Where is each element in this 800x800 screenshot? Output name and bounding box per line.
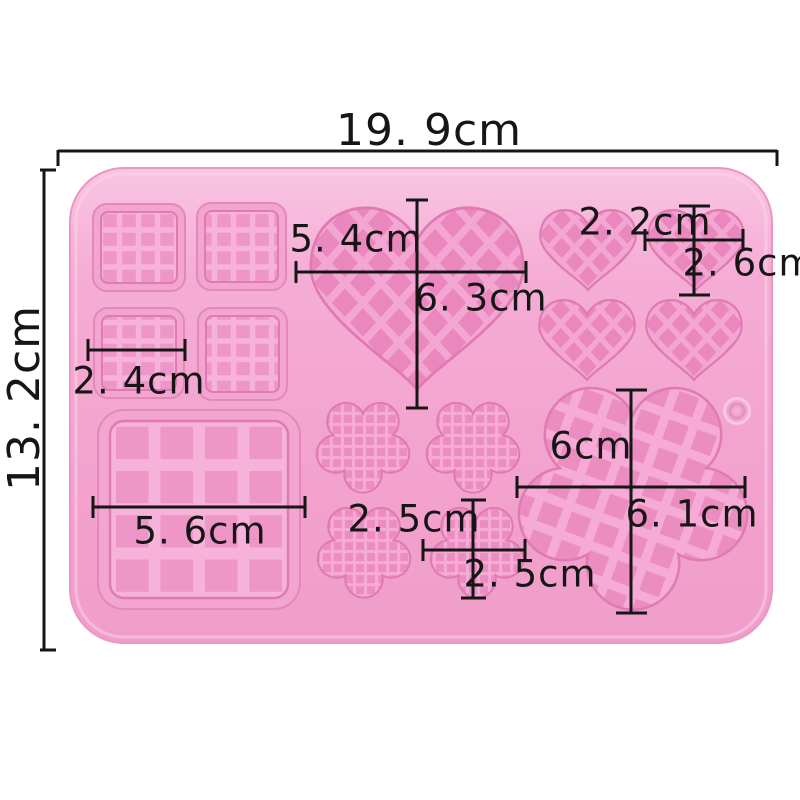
dim-label-overall-width: 19. 9cm bbox=[336, 109, 522, 153]
cavity-square-small-2 bbox=[197, 203, 286, 290]
dim-label-small-square-width: 2. 4cm bbox=[73, 363, 206, 400]
dim-label-large-heart-height: 6. 3cm bbox=[415, 280, 548, 317]
product-image: 19. 9cm 13. 2cm 5. 4cm 6. 3cm 2. 2cm 2. … bbox=[0, 0, 800, 800]
dim-label-small-heart-width: 2. 2cm bbox=[579, 204, 712, 241]
dim-label-large-flower-width: 6. 1cm bbox=[626, 496, 759, 533]
cavity-square-small-4 bbox=[198, 308, 287, 400]
cavity-square-small-1 bbox=[93, 204, 185, 291]
dim-label-small-flower-height: 2. 5cm bbox=[348, 501, 481, 538]
dim-label-large-square-width: 5. 6cm bbox=[134, 513, 267, 550]
dim-label-overall-height: 13. 2cm bbox=[3, 305, 47, 491]
dim-label-large-heart-width: 5. 4cm bbox=[290, 221, 423, 258]
dim-label-large-flower-height: 6cm bbox=[550, 428, 633, 465]
dim-label-small-heart-height: 2. 6cm bbox=[683, 245, 800, 282]
dim-label-small-flower-width: 2. 5cm bbox=[464, 556, 597, 593]
